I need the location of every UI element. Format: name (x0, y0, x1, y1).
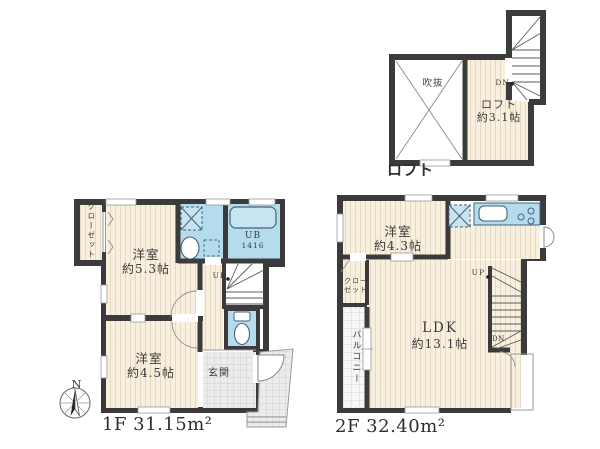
washing-machine-icon (181, 207, 202, 230)
f1-room1-size: 約5.3帖 (122, 263, 170, 275)
refrigerator-icon (449, 205, 470, 227)
loft-plan (392, 13, 543, 166)
f2-up-dot (486, 275, 490, 279)
washbasin-icon (181, 237, 199, 259)
f2-ldk-size: 約13.1帖 (412, 338, 469, 350)
f2-closet-label-line1: クロー (344, 278, 368, 285)
loft-plan-title: ロフト (387, 163, 434, 178)
f1-lavatory-door-gap (205, 257, 221, 265)
f1-room2-door-gap (172, 314, 198, 322)
f2-room-door-gap (350, 253, 366, 261)
f1-up-dot (226, 277, 230, 281)
f1-entrance-label: 玄関 (208, 369, 230, 379)
f2-up-label: UP (472, 269, 485, 277)
compass-rose-icon (60, 388, 90, 418)
f1-room2-label: 洋室 (135, 353, 162, 366)
balcony-label: バルコニー (351, 330, 360, 385)
f1-ub-size: 1416 (241, 242, 264, 250)
f2-room-label: 洋室 (384, 226, 411, 239)
sink-icon (479, 206, 507, 221)
f2-closet-label-line2: ゼット (344, 287, 368, 294)
f2-room-size: 約4.3帖 (374, 240, 422, 252)
floorplan-canvas: 吹抜 ロフト 約3.1帖 DN ロフト クローゼット 洋室 約5.3帖 UB 1… (0, 0, 600, 449)
f1-room1-label: 洋室 (132, 249, 159, 262)
loft-void-label: 吹抜 (422, 79, 443, 89)
f2-kitchen-floor (448, 224, 540, 259)
toilet-tank-icon (234, 312, 250, 321)
loft-dn-dot (510, 82, 514, 86)
f2-dn-label: DN (492, 336, 505, 343)
floor2-plan (337, 195, 554, 413)
f1-closet-label: クローゼット (87, 203, 95, 260)
f1-area-label: 1F 31.15m² (102, 416, 212, 434)
toilet-icon (235, 324, 250, 345)
loft-room-size: 約3.1帖 (477, 112, 522, 123)
loft-room-label: ロフト (481, 99, 517, 110)
f2-ldk-label: LDK (422, 322, 458, 336)
f1-entrance-floor (203, 352, 256, 408)
f1-ub-label: UB (245, 232, 261, 241)
f2-room-window-gap (391, 253, 413, 261)
f1-room2-size: 約4.5帖 (127, 367, 175, 379)
f1-divider-window (131, 314, 145, 322)
f1-room1-door-gap (196, 290, 204, 316)
loft-dn-label: DN (495, 79, 510, 87)
bathtub-icon (230, 207, 276, 228)
f2-door-arc (544, 227, 554, 247)
f2-area-label: 2F 32.40m² (335, 418, 445, 436)
compass-north-label: N (71, 379, 82, 391)
f1-up-label: UP (213, 272, 226, 280)
